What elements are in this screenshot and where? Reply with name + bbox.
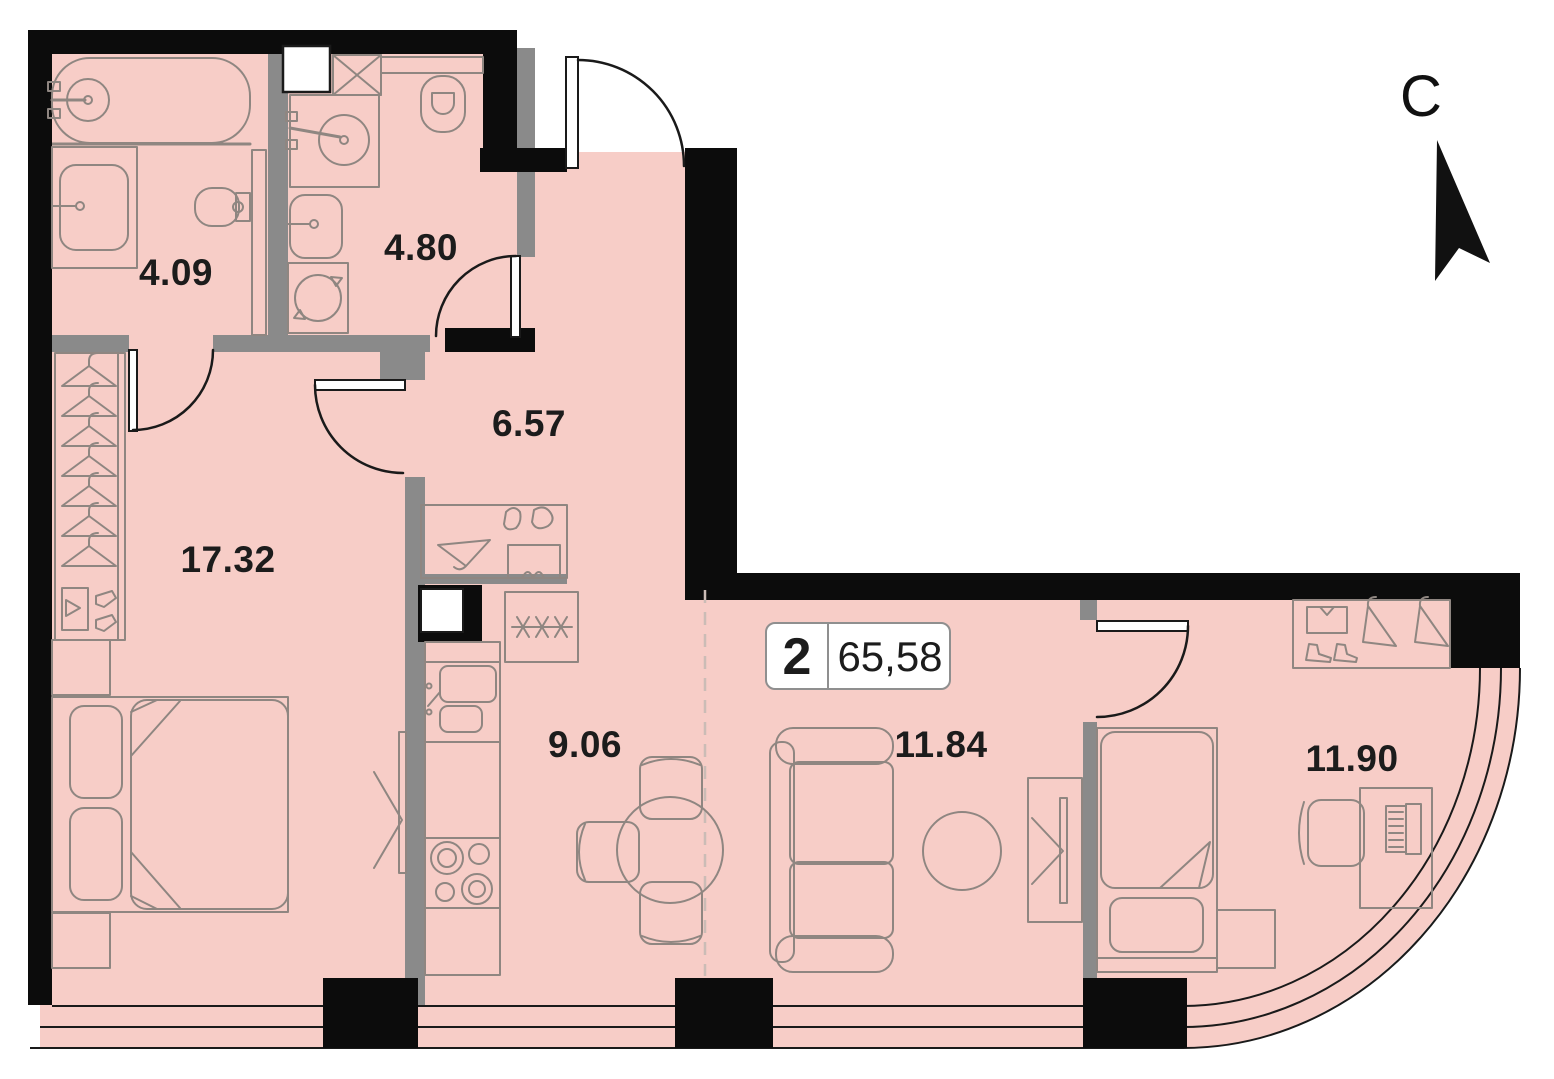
wall-between-bathrooms	[268, 52, 288, 337]
apartment-badge: 2 65,58	[766, 623, 950, 689]
wall-left	[28, 30, 52, 1005]
label-bathroom-2: 4.80	[384, 227, 458, 268]
label-hallway: 6.57	[492, 403, 566, 444]
badge-total-area: 65,58	[837, 633, 942, 680]
wall-bath-bottom	[213, 335, 430, 352]
facade-mullion-2	[675, 978, 773, 1048]
label-master-bedroom: 17.32	[180, 539, 275, 580]
north-indicator: С	[1400, 64, 1490, 281]
bathroom1-door-leaf	[129, 350, 137, 431]
wall-bath1-bottom-left	[52, 335, 129, 352]
bathroom2-door-leaf	[511, 256, 520, 337]
wall-entry-right-bar	[685, 148, 737, 600]
bedroom2-door-leaf	[1097, 621, 1188, 631]
wall-bedroom2-left	[1083, 722, 1097, 978]
label-living-room: 11.84	[894, 724, 987, 765]
entrance-door-arc	[578, 60, 684, 166]
wall-top-right-section	[737, 573, 1520, 600]
floor-plan: 4.09 4.80 6.57 17.32 9.06 11.84 11.90 2 …	[0, 0, 1554, 1079]
entrance-door-leaf	[566, 57, 578, 168]
facade-mullion-3	[1083, 978, 1187, 1048]
wall-corner-step	[380, 352, 425, 380]
master-bedroom-door-leaf	[315, 380, 405, 390]
north-arrow-icon	[1435, 140, 1490, 281]
wall-entry-left-column	[483, 30, 517, 150]
label-bathroom-1: 4.09	[139, 252, 213, 293]
wall-entry-threshold	[480, 148, 567, 172]
wall-bedroom2-jamb	[1080, 598, 1097, 620]
floor-entry-nook	[535, 152, 685, 337]
label-bedroom: 11.90	[1305, 738, 1398, 779]
wall-top	[28, 30, 517, 54]
label-kitchen: 9.06	[548, 724, 622, 765]
north-label: С	[1400, 64, 1442, 129]
wall-hall-block	[445, 328, 535, 352]
facade-mullion-1	[323, 978, 418, 1048]
badge-rooms-count: 2	[783, 628, 812, 686]
shaft-top	[283, 46, 330, 92]
wall-right-column	[1450, 573, 1520, 668]
floor-master-bedroom	[52, 337, 425, 1005]
shaft-kitchen	[421, 589, 463, 632]
